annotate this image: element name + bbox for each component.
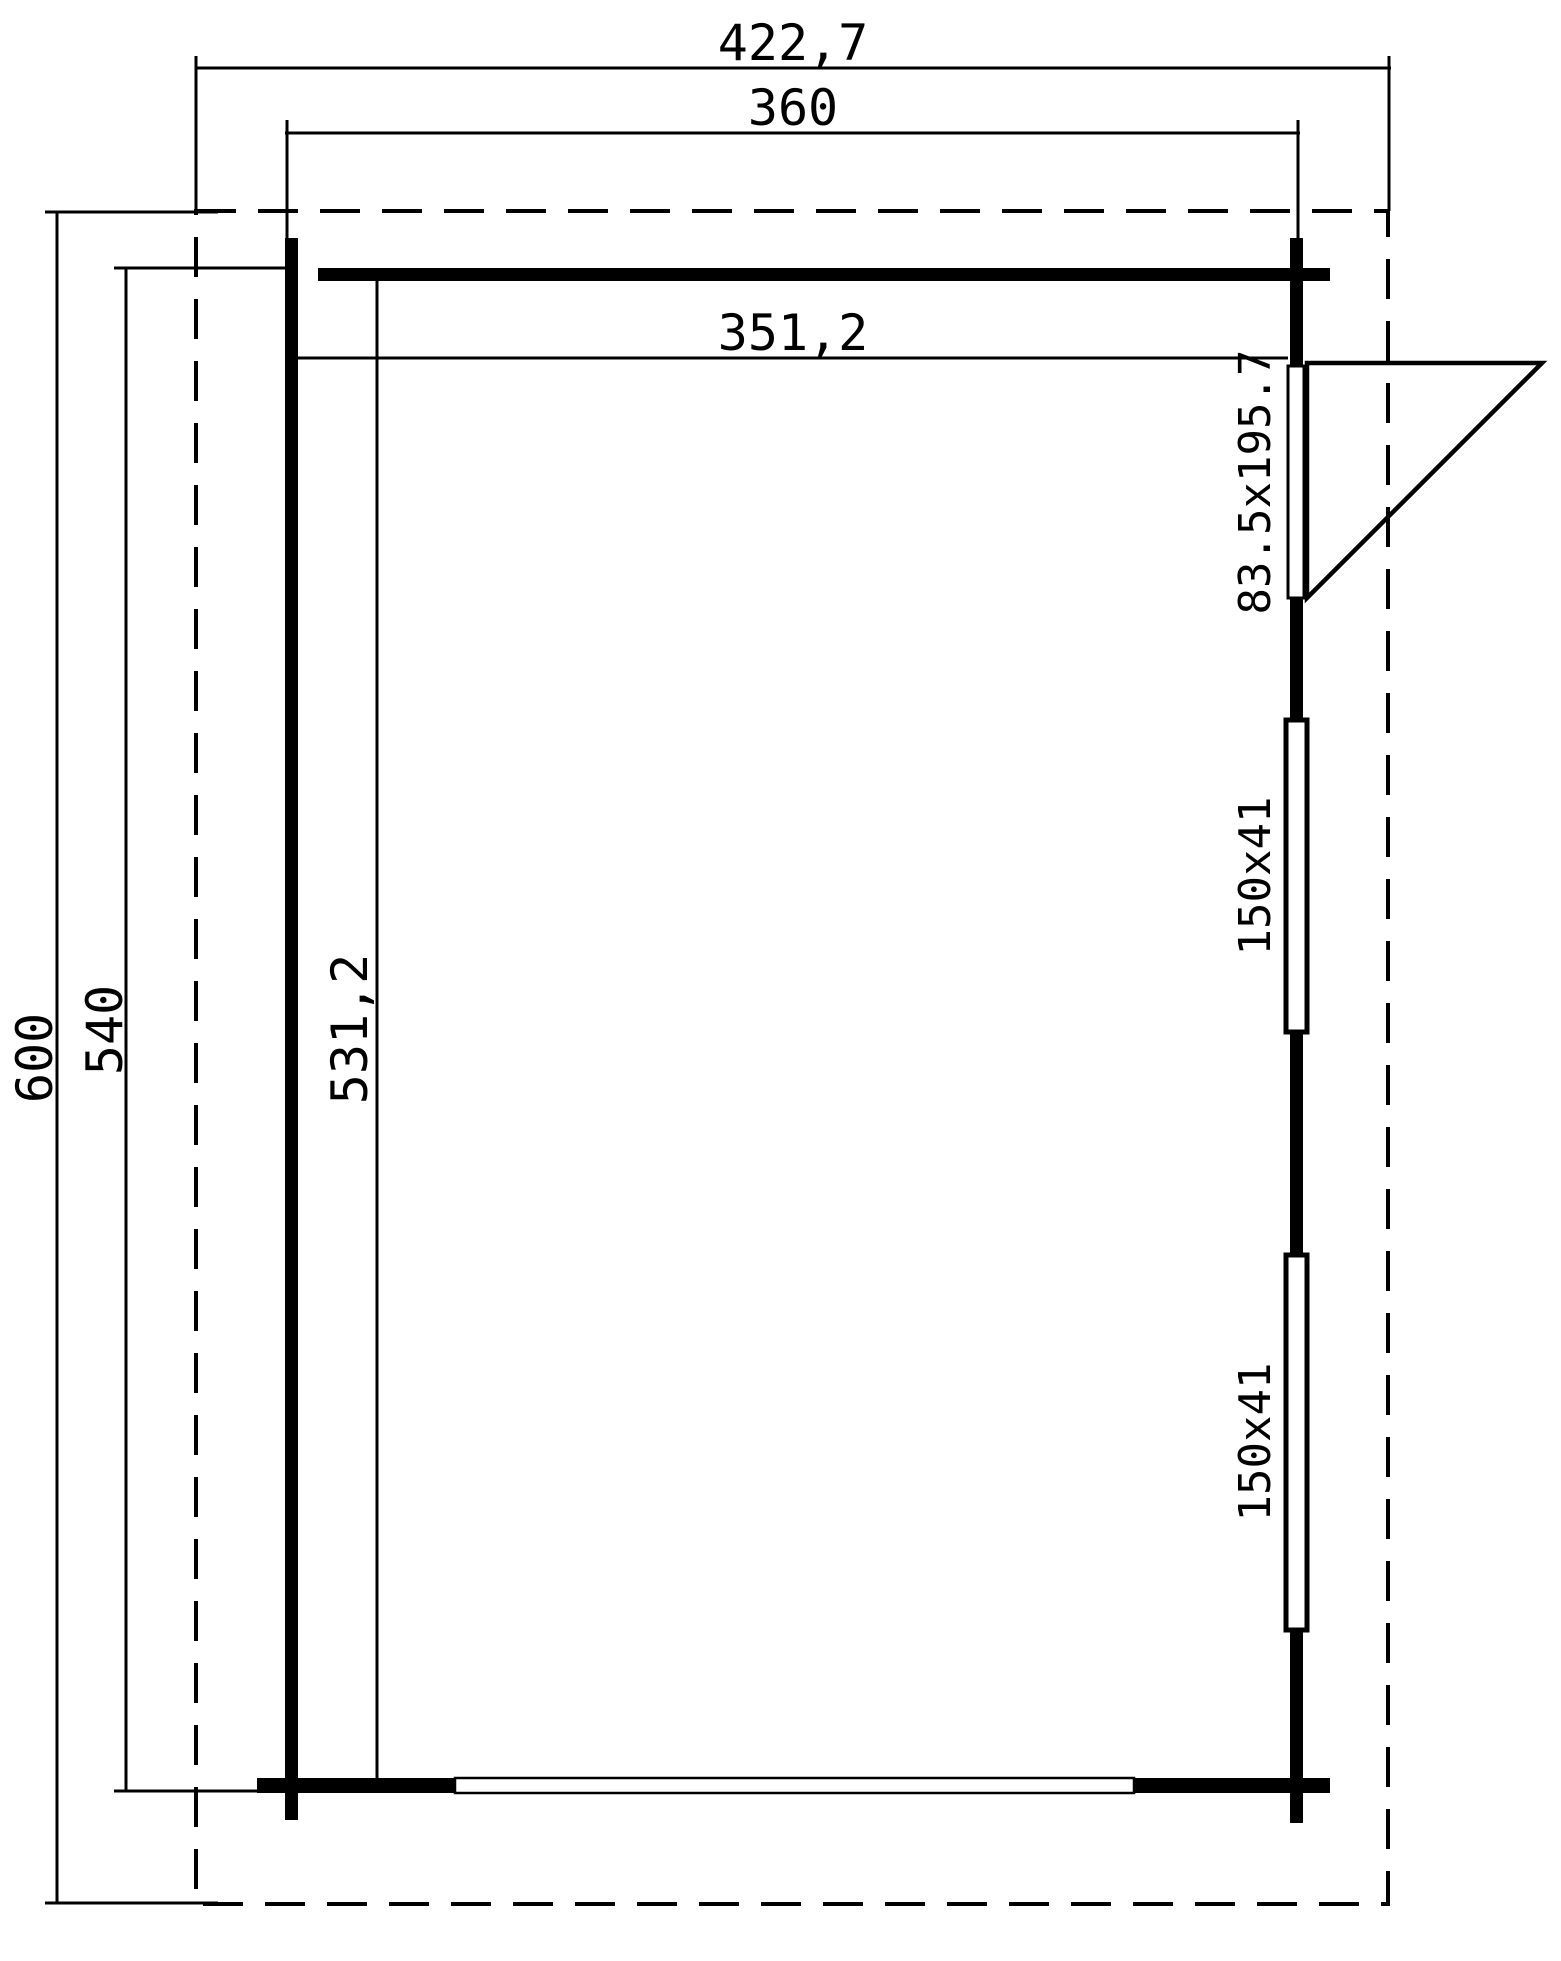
door-leaf [1288,366,1304,598]
wall-right-above-door [1290,238,1303,366]
wall-bottom-right [1134,1778,1330,1793]
wall-right-door-to-window1 [1290,598,1303,720]
floor-plan-drawing: 422,7 360 351,2 600 540 531,2 83.5x195.7… [0,0,1561,1961]
drawing-sheet: 422,7 360 351,2 600 540 531,2 83.5x195.7… [0,0,1561,1961]
label-window-2-size: 150x41 [1230,1363,1281,1522]
wall-left [285,238,298,1820]
label-inner-width: 351,2 [718,304,869,362]
window-2 [1286,1255,1307,1630]
window-1 [1286,720,1307,1032]
wall-bottom-left [257,1778,455,1793]
label-inner-depth: 531,2 [321,954,379,1105]
label-outer-depth: 600 [6,1013,64,1103]
wall-right-below-window2 [1290,1630,1303,1823]
walls [257,238,1330,1823]
label-door-size: 83.5x195.7 [1230,350,1281,615]
wall-right-window1-to-window2 [1290,1032,1303,1255]
label-shell-width: 360 [748,79,838,137]
door-swing [1307,363,1542,598]
label-window-1-size: 150x41 [1230,797,1281,956]
label-shell-depth: 540 [76,985,134,1075]
wall-top [318,268,1330,281]
bottom-opening [455,1778,1134,1793]
label-outer-width: 422,7 [718,14,869,72]
